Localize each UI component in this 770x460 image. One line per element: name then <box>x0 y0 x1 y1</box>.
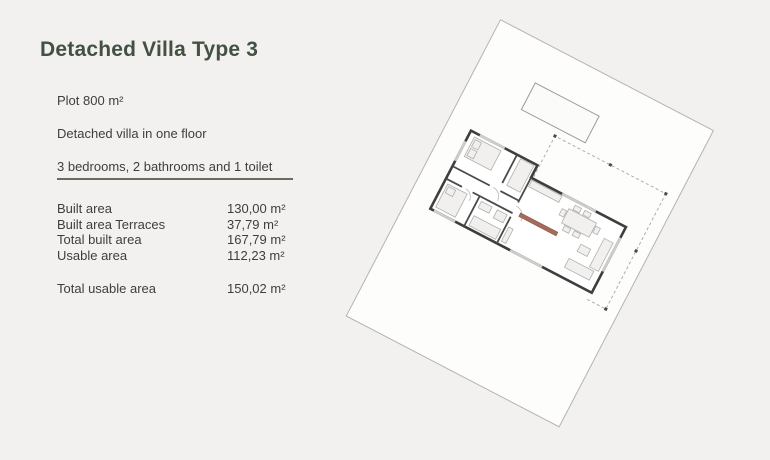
area-row-terraces: Built area Terraces 37,79 m² <box>57 217 302 233</box>
area-label: Built area <box>57 201 112 216</box>
spec-panel: Detached Villa Type 3 Plot 800 m² Detach… <box>0 0 340 460</box>
divider <box>57 178 293 180</box>
area-value: 112,23 m² <box>227 248 285 264</box>
area-value: 167,79 m² <box>227 232 286 248</box>
areas-table: Built area 130,00 m² Built area Terraces… <box>57 201 302 263</box>
area-row-built: Built area 130,00 m² <box>57 201 302 217</box>
summary-plot-size: Plot 800 m² <box>57 93 123 108</box>
area-label: Built area Terraces <box>57 217 165 232</box>
area-label: Usable area <box>57 248 127 263</box>
area-value: 37,79 m² <box>227 217 278 233</box>
site-plan-rotated-group <box>346 20 713 427</box>
summary-floors: Detached villa in one floor <box>57 126 207 141</box>
area-label: Total built area <box>57 232 142 247</box>
area-row-total-built: Total built area 167,79 m² <box>57 232 302 248</box>
area-value: 150,02 m² <box>227 281 286 297</box>
area-row-usable: Usable area 112,23 m² <box>57 248 302 264</box>
area-label: Total usable area <box>57 281 156 296</box>
page-title: Detached Villa Type 3 <box>40 38 258 62</box>
area-value: 130,00 m² <box>227 201 286 217</box>
summary-rooms: 3 bedrooms, 2 bathrooms and 1 toilet <box>57 159 272 174</box>
area-row-total-usable: Total usable area 150,02 m² <box>57 281 302 297</box>
brochure-page: { "page": { "background_color": "#f2f1ef… <box>0 0 770 460</box>
